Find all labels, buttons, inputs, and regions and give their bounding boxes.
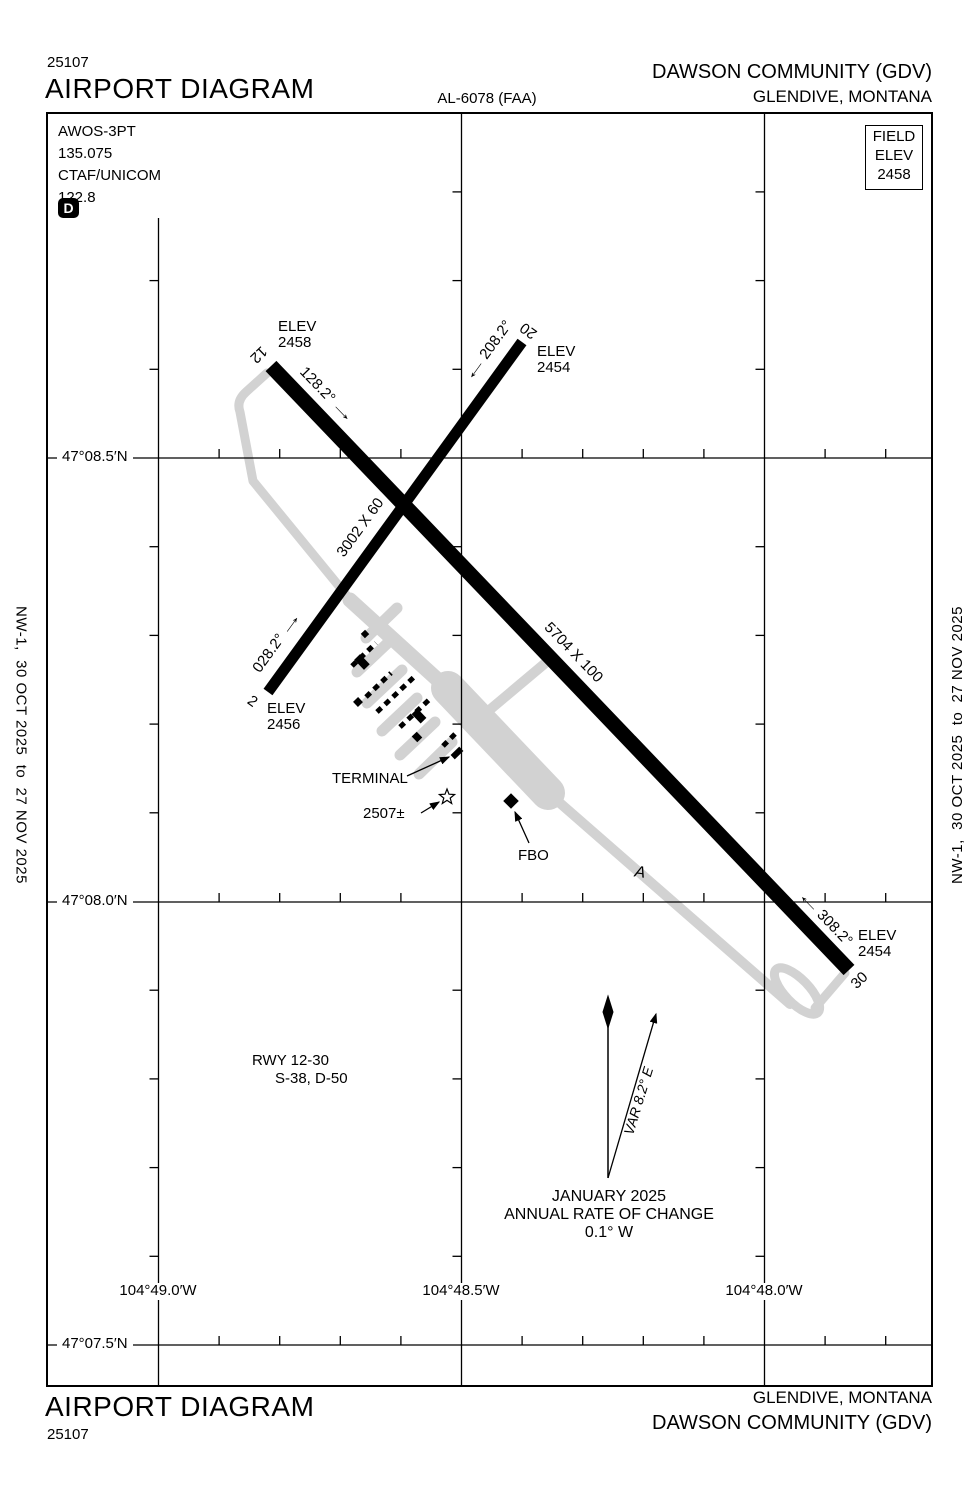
- field-elev-value: 2458: [866, 165, 922, 184]
- awos-frequency: 135.075: [58, 146, 112, 163]
- variation-date: JANUARY 2025: [552, 1188, 666, 1206]
- procedure-id: AL-6078 (FAA): [437, 91, 536, 108]
- field-elev-line1: FIELD: [866, 127, 922, 146]
- longitude-label: 104°48.0′W: [720, 1283, 807, 1300]
- footer-title: AIRPORT DIAGRAM: [45, 1392, 314, 1423]
- airport-diagram-canvas: [0, 0, 978, 1500]
- obstruction-elevation-label: 2507±: [363, 806, 405, 823]
- hot-spot-d-icon: D: [58, 198, 79, 218]
- annual-rate-value: 0.1° W: [585, 1224, 633, 1242]
- elev-label: ELEV: [537, 344, 575, 360]
- runway-data-ratings: S-38, D-50: [275, 1071, 348, 1088]
- longitude-label: 104°49.0′W: [114, 1283, 201, 1300]
- latitude-label: 47°08.5′N: [57, 449, 133, 466]
- field-elev-line2: ELEV: [866, 146, 922, 165]
- longitude-label: 104°48.5′W: [417, 1283, 504, 1300]
- runway-30-elevation: ELEV 2454: [858, 928, 896, 960]
- true-north-diamond-icon: [603, 996, 613, 1028]
- runway-12-elevation: ELEV 2458: [278, 319, 316, 351]
- header-city-state: GLENDIVE, MONTANA: [753, 88, 932, 107]
- fbo-building: [503, 793, 519, 809]
- footer-city-state: GLENDIVE, MONTANA: [753, 1389, 932, 1408]
- left-margin-edition: NW-1, 30 OCT 2025 to 27 NOV 2025: [12, 606, 29, 884]
- fbo-arrow: [515, 812, 529, 843]
- ctaf-unicom-label: CTAF/UNICOM: [58, 168, 161, 185]
- runways: [268, 342, 849, 970]
- elev-value: 2458: [278, 335, 316, 351]
- elev-label: ELEV: [858, 928, 896, 944]
- page-title: AIRPORT DIAGRAM: [45, 74, 314, 105]
- taxiway-network: [239, 373, 845, 1021]
- annual-rate-label: ANNUAL RATE OF CHANGE: [504, 1206, 714, 1224]
- obstruction-star-icon: [439, 789, 454, 804]
- field-elevation-box: FIELD ELEV 2458: [865, 125, 923, 190]
- header-airport-name: DAWSON COMMUNITY (GDV): [652, 61, 932, 83]
- latitude-label: 47°07.5′N: [57, 1336, 133, 1353]
- footer-chart-number: 25107: [47, 1427, 89, 1444]
- terminal-label: TERMINAL: [332, 771, 408, 788]
- runway-20-elevation: ELEV 2454: [537, 344, 575, 376]
- elev-value: 2454: [858, 944, 896, 960]
- airport-diagram-page: { "header": { "chart_number": "25107", "…: [0, 0, 978, 1500]
- right-margin-edition: NW-1, 30 OCT 2025 to 27 NOV 2025: [950, 606, 967, 884]
- fbo-label: FBO: [518, 848, 549, 865]
- awos-label: AWOS-3PT: [58, 124, 136, 141]
- runway-2-elevation: ELEV 2456: [267, 701, 305, 733]
- elev-label: ELEV: [278, 319, 316, 335]
- latitude-label: 47°08.0′N: [57, 893, 133, 910]
- obstruction-arrow: [421, 802, 439, 813]
- grid-tick-marks: [98, 192, 886, 1345]
- elev-value: 2456: [267, 717, 305, 733]
- elev-value: 2454: [537, 360, 575, 376]
- elev-label: ELEV: [267, 701, 305, 717]
- taxiway-a-label: A: [633, 864, 646, 883]
- header-chart-number: 25107: [47, 55, 89, 72]
- footer-airport-name: DAWSON COMMUNITY (GDV): [652, 1412, 932, 1434]
- runway-data-runway: RWY 12-30: [252, 1053, 329, 1070]
